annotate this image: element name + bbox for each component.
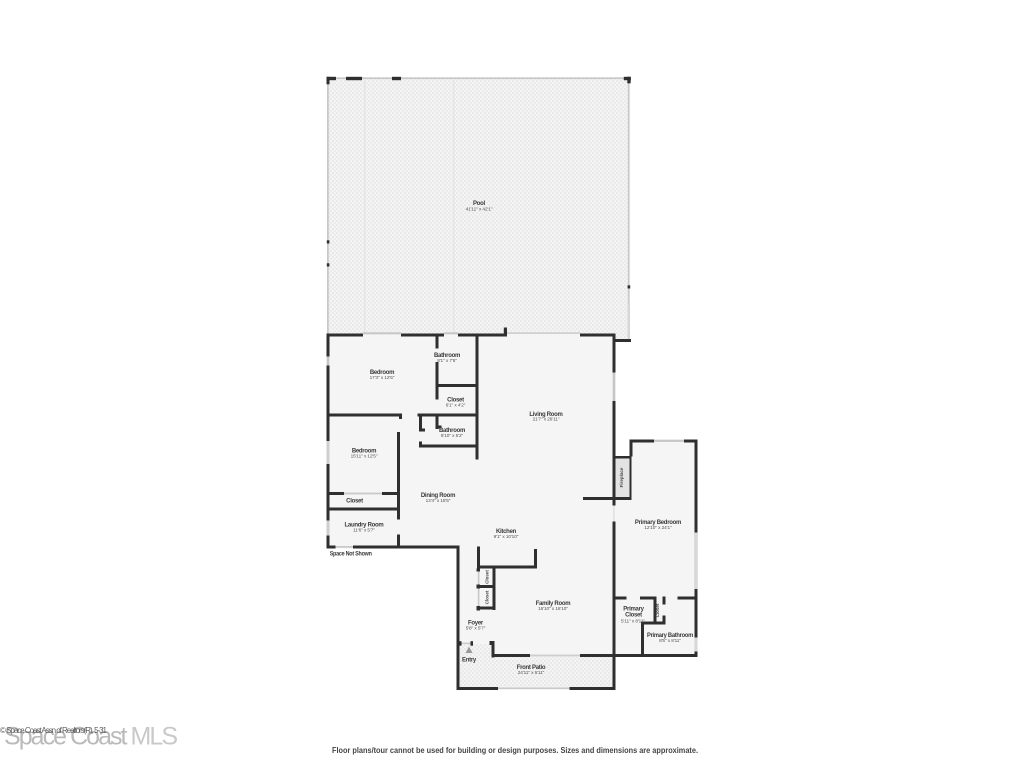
svg-text:41'11" x 42'1": 41'11" x 42'1" xyxy=(466,206,493,211)
svg-text:9'1" x 10'10": 9'1" x 10'10" xyxy=(494,534,519,539)
svg-text:13'4" x 15'5": 13'4" x 15'5" xyxy=(426,498,451,503)
svg-text:5'11" x 8'11": 5'11" x 8'11" xyxy=(621,619,645,624)
svg-text:Closet: Closet xyxy=(655,603,660,617)
svg-text:11'6" x 5'7": 11'6" x 5'7" xyxy=(353,528,375,533)
svg-text:Space Not Shown: Space Not Shown xyxy=(330,551,373,557)
svg-text:Fireplace: Fireplace xyxy=(619,467,624,487)
svg-text:21'7" x 26'11": 21'7" x 26'11" xyxy=(533,417,560,422)
svg-text:15'11" x 12'5": 15'11" x 12'5" xyxy=(351,454,378,459)
svg-text:Floor plans/tour cannot be use: Floor plans/tour cannot be used for buil… xyxy=(332,746,698,755)
svg-text:16'10" x 16'10": 16'10" x 16'10" xyxy=(538,606,568,611)
svg-text:Closet: Closet xyxy=(485,590,490,604)
svg-text:24'11" x 6'11": 24'11" x 6'11" xyxy=(518,670,545,675)
svg-text:8'5" x 8'11": 8'5" x 8'11" xyxy=(659,638,681,643)
svg-text:Closet: Closet xyxy=(346,499,363,505)
svg-text:© Space Coast Assn of Realtors: © Space Coast Assn of Realtors(R), 5-31 xyxy=(0,726,108,735)
svg-text:6'1" x 4'2": 6'1" x 4'2" xyxy=(446,403,466,408)
svg-text:8'10" x 5'2": 8'10" x 5'2" xyxy=(441,433,464,438)
svg-text:5'8" x 5'7": 5'8" x 5'7" xyxy=(466,626,486,631)
svg-text:17'3" x 12'5": 17'3" x 12'5" xyxy=(370,375,395,380)
svg-text:Closet: Closet xyxy=(485,570,490,584)
svg-text:12'10" x 24'1": 12'10" x 24'1" xyxy=(644,525,672,530)
svg-text:Entry: Entry xyxy=(462,658,477,664)
svg-text:8'1" x 7'6": 8'1" x 7'6" xyxy=(437,358,457,363)
